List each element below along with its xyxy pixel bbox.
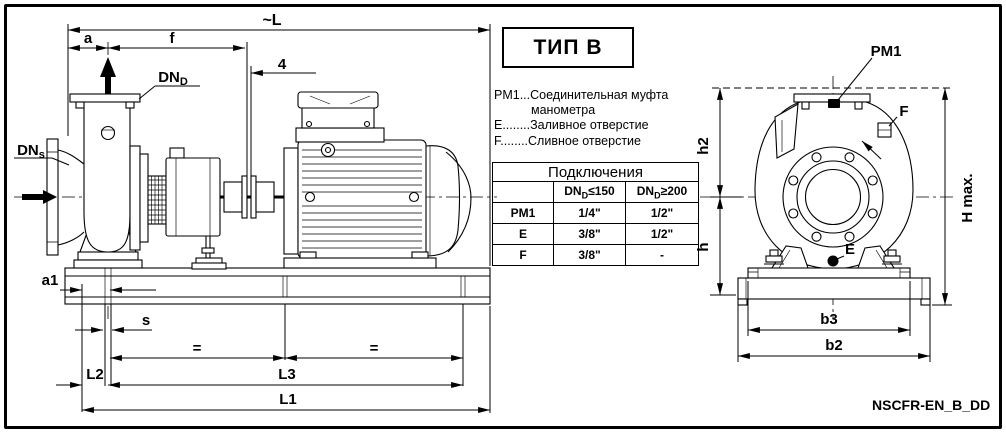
dim-label-L3: L3	[278, 366, 296, 383]
pump-dimension-drawing-page: ~L a f 4 DND DNs a1 s = = L2 L3 L1	[0, 0, 1006, 433]
type-title: ТИП B	[533, 36, 602, 60]
pump-casing	[84, 102, 130, 252]
dim-label-a1: a1	[42, 272, 59, 289]
dim-label-L1: L1	[279, 391, 297, 408]
dim-label-b2: b2	[825, 337, 843, 354]
bolt-hole	[845, 232, 854, 241]
row-value: 3/8"	[554, 224, 626, 245]
dim-label-b3: b3	[820, 311, 838, 328]
document-code: NSCFR-EN_B_DD	[872, 397, 997, 413]
table-header-dnd-small: DND≤150	[554, 182, 626, 203]
row-label: E	[493, 224, 554, 245]
motor-endbell	[284, 148, 298, 254]
bolt-hole	[789, 176, 798, 185]
bearing-bracket	[130, 146, 226, 269]
row-label: F	[493, 245, 554, 266]
pm1-port	[828, 99, 840, 108]
bolt-hole	[812, 232, 821, 241]
dim-label-a: a	[84, 30, 93, 47]
drain-plug	[878, 123, 891, 137]
dim-label-dn-suction: DNs	[17, 142, 45, 161]
bolt-hole	[845, 153, 854, 162]
base-channel	[738, 278, 930, 299]
bolt-hole	[868, 176, 877, 185]
bolt-hole	[868, 209, 877, 218]
table-row-pm1: PM1 1/4" 1/2"	[493, 203, 699, 224]
fill-plug	[828, 256, 839, 267]
terminal-box-seat	[296, 128, 384, 142]
connections-table: Подключения DND≤150 DND≥200 PM1 1/4" 1/2…	[492, 162, 699, 266]
table-header-empty	[493, 182, 554, 203]
table-row-e: E 3/8" 1/2"	[493, 224, 699, 245]
dim-label-equal-left: =	[193, 340, 202, 357]
fan-cowl	[426, 146, 460, 256]
row-value: 1/2"	[626, 203, 699, 224]
coupling	[220, 176, 284, 218]
dim-label-f: f	[170, 30, 176, 47]
legend-line-pm1-cont: манометра	[531, 103, 668, 118]
row-label: PM1	[493, 203, 554, 224]
label-fill-E: E	[845, 241, 855, 258]
label-drain-F: F	[899, 103, 908, 120]
dim-label-h2: h2	[695, 137, 712, 155]
dim-label-equal-right: =	[370, 340, 379, 357]
row-value: 1/2"	[626, 224, 699, 245]
dim-label-L2: L2	[86, 366, 104, 383]
table-row-f: F 3/8" -	[493, 245, 699, 266]
legend-line-pm1: PM1...Соединительная муфта	[494, 88, 668, 103]
label-pm1: PM1	[871, 43, 902, 60]
bolt-hole	[812, 153, 821, 162]
legend: PM1...Соединительная муфта манометра E..…	[494, 88, 668, 149]
row-value: -	[626, 245, 699, 266]
dim-label-dn-discharge: DND	[158, 69, 188, 88]
row-value: 3/8"	[554, 245, 626, 266]
motor-rail	[284, 258, 436, 268]
legend-line-e: E........Заливное отверстие	[494, 118, 668, 133]
front-view: PM1 F E h2 h H max. b3 b2	[695, 43, 976, 362]
motor-body	[298, 140, 426, 258]
row-value: 1/4"	[554, 203, 626, 224]
dim-label-gap-4: 4	[278, 56, 287, 73]
dim-label-overall-length: ~L	[262, 12, 281, 29]
baseplate	[65, 268, 490, 304]
table-header-row: DND≤150 DND≥200	[493, 182, 699, 203]
table-title-row: Подключения	[493, 163, 699, 182]
terminal-box-lid	[298, 92, 378, 108]
legend-line-f: F........Сливное отверстие	[494, 134, 668, 149]
motor	[284, 92, 471, 268]
table-title: Подключения	[493, 163, 699, 182]
side-view: ~L a f 4 DND DNs a1 s = = L2 L3 L1	[14, 12, 497, 413]
bolt-hole	[789, 209, 798, 218]
dim-label-h-max: H max.	[959, 173, 976, 222]
discharge-flow-arrow	[100, 57, 116, 94]
saddle-plate	[748, 268, 910, 278]
type-title-box: ТИП B	[502, 27, 634, 68]
dim-label-s: s	[142, 312, 150, 329]
front-suction-flange	[783, 147, 883, 247]
table-header-dnd-large: DND≥200	[626, 182, 699, 203]
